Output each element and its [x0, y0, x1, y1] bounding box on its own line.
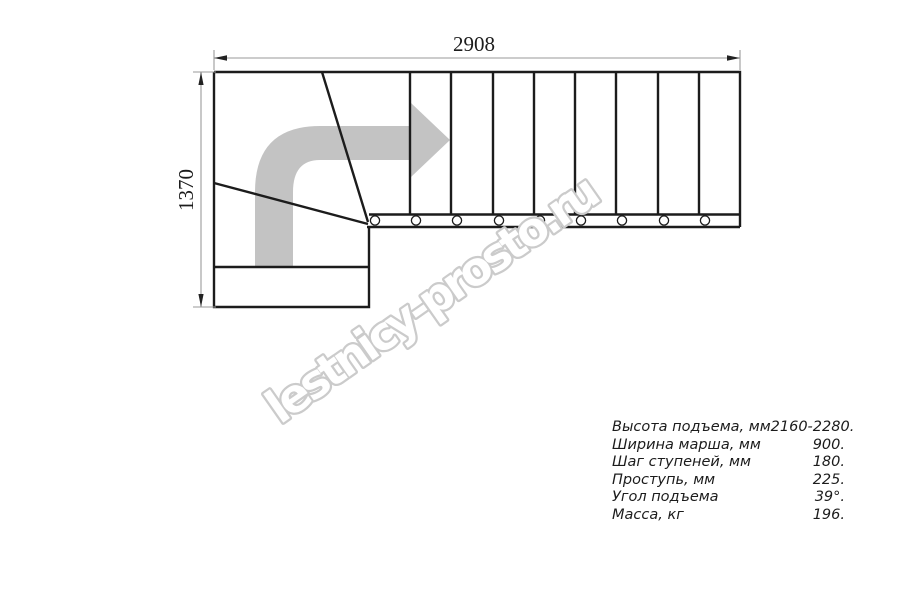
- spec-row: Проступь, мм 225.: [612, 472, 845, 490]
- baluster-marker: [659, 216, 668, 225]
- stair-drawing-page: 2908 1370 lestnicy-prosto.ru Высота подъ…: [0, 0, 900, 600]
- dimension-arrow-right-icon: [727, 55, 740, 60]
- watermark-text: lestnicy-prosto.ru: [255, 166, 606, 434]
- spec-row: Высота подъема, мм 2160-2280.: [612, 419, 845, 437]
- spec-label: Угол подъема: [612, 489, 719, 507]
- baluster-marker: [452, 216, 461, 225]
- baluster-marker: [370, 216, 379, 225]
- baluster-marker: [700, 216, 709, 225]
- spec-value: 900.: [813, 437, 845, 455]
- spec-label: Ширина марша, мм: [612, 437, 761, 455]
- spec-value: 196.: [813, 507, 845, 525]
- dimension-width-label: 2908: [453, 32, 495, 56]
- spec-row: Ширина марша, мм 900.: [612, 437, 845, 455]
- spec-row: Масса, кг 196.: [612, 507, 845, 525]
- spec-value: 39°.: [815, 489, 845, 507]
- spec-label: Проступь, мм: [612, 472, 715, 490]
- spec-row: Угол подъема 39°.: [612, 489, 845, 507]
- baluster-marker: [411, 216, 420, 225]
- dimension-width: 2908: [214, 32, 740, 70]
- spec-row: Шаг ступеней, мм 180.: [612, 454, 845, 472]
- spec-table: Высота подъема, мм 2160-2280. Ширина мар…: [612, 419, 845, 525]
- baluster-marker: [617, 216, 626, 225]
- spec-label: Шаг ступеней, мм: [612, 454, 751, 472]
- direction-arrow-icon: [255, 103, 450, 267]
- dimension-height-label: 1370: [174, 169, 198, 211]
- spec-value: 2160-2280.: [771, 419, 855, 437]
- spec-value: 225.: [813, 472, 845, 490]
- dimension-arrow-down-icon: [198, 294, 203, 307]
- dimension-arrow-left-icon: [214, 55, 227, 60]
- spec-label: Масса, кг: [612, 507, 684, 525]
- spec-label: Высота подъема, мм: [612, 419, 771, 437]
- spec-value: 180.: [813, 454, 845, 472]
- dimension-height: 1370: [174, 72, 216, 307]
- dimension-arrow-up-icon: [198, 72, 203, 85]
